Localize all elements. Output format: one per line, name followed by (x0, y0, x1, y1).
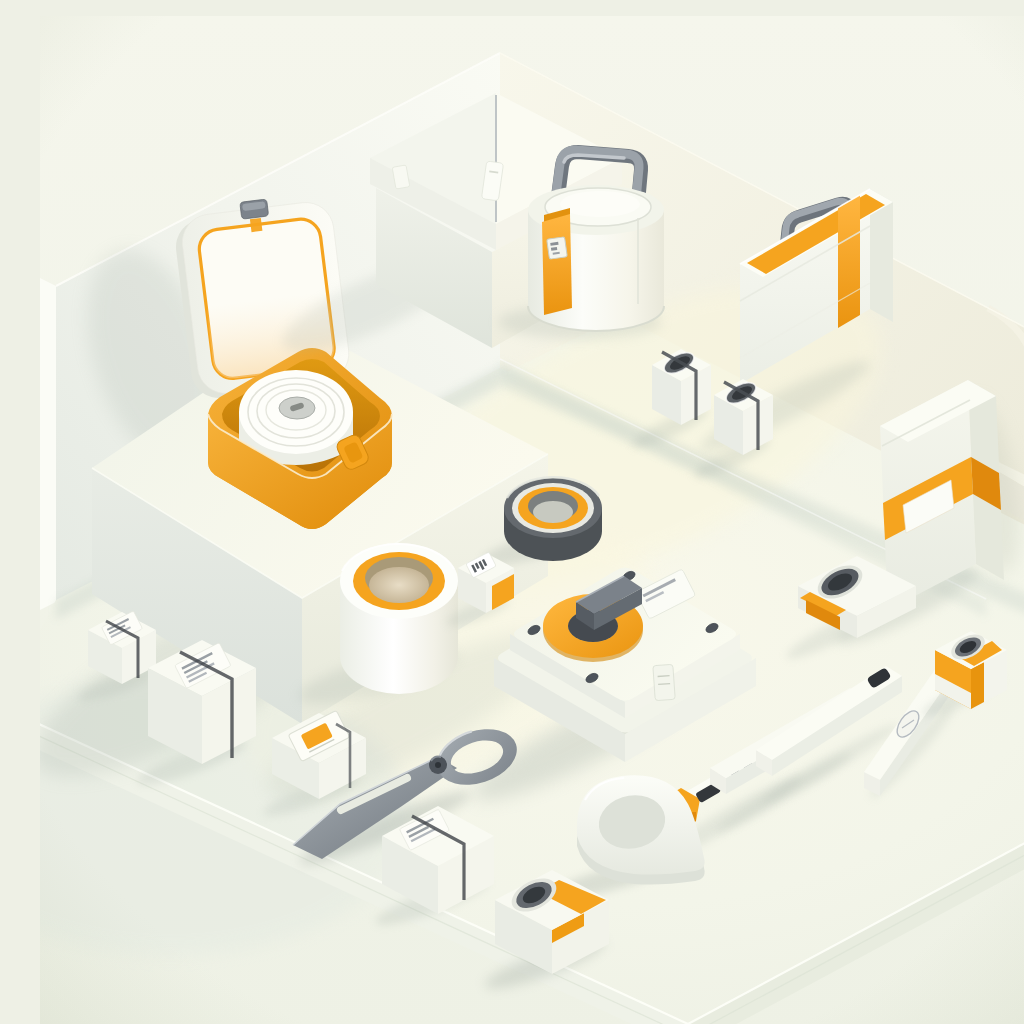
scene-canvas: Isometric 3D render: white and orange fi… (40, 16, 1024, 1024)
isometric-illustration: Isometric 3D render: white and orange fi… (40, 16, 1024, 1024)
vignette-overlay (40, 16, 1024, 1024)
